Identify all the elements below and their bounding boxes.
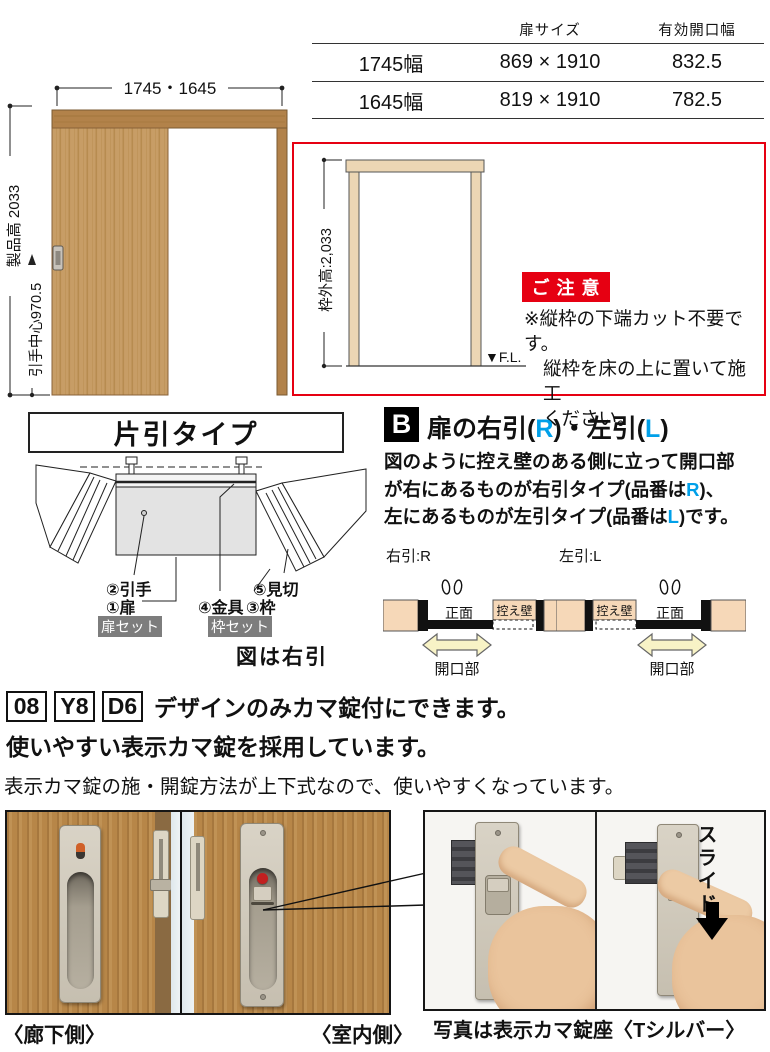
design-code-y8: Y8 [54, 691, 95, 722]
latch-lever [150, 879, 172, 891]
size-table-header-opening: 有効開口幅 [630, 19, 764, 40]
hand [488, 906, 595, 1009]
jamb-cap [585, 600, 593, 631]
row-width-label: 1645幅 [312, 86, 470, 115]
section-b-body: 図のように控え壁のある側に立って開口部 が右にあるものが右引タイプ(品番はR)、… [384, 448, 766, 531]
row-door-size: 869 × 1910 [470, 51, 630, 74]
lock-headline-2: 使いやすい表示カマ錠を採用しています。 [6, 728, 440, 762]
latch-hardware [190, 836, 205, 920]
handle-dim-arrow [28, 254, 36, 265]
hanger-bracket [126, 457, 247, 474]
down-arrow-icon [696, 902, 728, 940]
height-dimension-label: 製品高 2033 [6, 185, 23, 268]
lintel [52, 110, 287, 128]
diagram-title: 右引:R [386, 548, 431, 565]
row-opening: 782.5 [630, 89, 764, 112]
callout-lines [250, 855, 430, 915]
frame-height-dimension-label: 枠外高:2,033 [318, 228, 335, 312]
jamb-cap [418, 600, 428, 631]
opening-arrow [423, 634, 491, 656]
left-jamb [349, 172, 359, 366]
screw [260, 830, 266, 836]
wall-left [383, 600, 418, 631]
door-pull-recess [56, 251, 61, 265]
front-label: 正面 [445, 605, 473, 621]
table-row: 1645幅 819 × 1910 782.5 [312, 81, 764, 119]
row-door-size: 819 × 1910 [470, 89, 630, 112]
photo-corridor-side [7, 812, 180, 1013]
lock-headline-1: デザインのみカマ錠付にできます。 [154, 689, 520, 723]
photo-caption: 写真は表示カマ錠座〈Tシルバー〉 [433, 1014, 745, 1043]
opening-label: 開口部 [649, 661, 694, 678]
screw [260, 994, 266, 1000]
pull-recess [67, 872, 94, 989]
door-bar [636, 620, 701, 629]
caution-line: 縦枠を床の上に置いて施工 [524, 356, 764, 406]
caution-box: 枠外高:2,033 ▼F.L. ご注意 ※縦枠の下端カット不要です。 縦枠を床の… [292, 142, 766, 396]
pocket-label: 控え壁 [496, 603, 532, 618]
body-line: 図のように控え壁のある側に立って開口部 [384, 448, 766, 476]
latch-rod [196, 843, 200, 891]
row-width-label: 1745幅 [312, 48, 470, 77]
door-bar [428, 620, 493, 629]
caution-badge: ご注意 [522, 272, 610, 302]
badge-door-set: 扉セット [98, 616, 162, 637]
size-table-header-row: 扉サイズ 有効開口幅 [312, 16, 764, 43]
frame-gap [171, 812, 180, 1013]
pocket-label: 控え壁 [596, 603, 632, 618]
body-line: が右にあるものが右引タイプ(品番はR)、 [384, 476, 766, 504]
catalog-page: 扉サイズ 有効開口幅 1745幅 869 × 1910 832.5 1645幅 … [0, 0, 770, 1052]
design-code-d6: D6 [102, 691, 143, 722]
katabiki-title-box: 片引タイプ [28, 412, 344, 453]
right-pull-diagram: 右引:R 正面 控え壁 開口部 [383, 548, 573, 680]
feet-icon [441, 580, 462, 595]
frame-diagram: 枠外高:2,033 ▼F.L. [302, 154, 526, 382]
right-jamb [471, 172, 481, 366]
jamb-cap [701, 600, 711, 631]
screw [495, 830, 501, 836]
section-b-title: 扉の右引(R)・左引(L) [427, 409, 669, 445]
floor-level-label: ▼F.L. [485, 349, 521, 365]
door-dashed [596, 620, 636, 629]
orange-indicator [76, 843, 85, 859]
section-b-badge: B [384, 407, 419, 442]
body-line: 左にあるものが左引タイプ(品番はL)です。 [384, 503, 766, 531]
door-panel [116, 487, 256, 555]
room-caption: 〈室内側〉 [311, 1018, 414, 1048]
latch-hardware [153, 830, 169, 918]
photo-lock [597, 812, 764, 1009]
row-opening: 832.5 [630, 51, 764, 74]
design-codes-row: 08 Y8 D6 デザインのみカマ錠付にできます。 [6, 689, 520, 723]
label-tobira: ①扉 [106, 594, 136, 618]
pull-pin [142, 511, 147, 516]
label-mikiri: ⑤見切 [253, 576, 299, 600]
door-panel [52, 128, 168, 395]
corridor-caption: 〈廊下側〉 [3, 1018, 106, 1048]
handle-center-dimension-label: 引手中心970.5 [28, 283, 45, 377]
door-track [116, 474, 256, 487]
lock-body-text: 表示カマ錠の施・開錠方法が上下式なので、使いやすくなっています。 [4, 770, 624, 799]
lock-plate [240, 823, 284, 1007]
left-pull-diagram: 左引:L 正面 控え壁 開口部 [556, 548, 746, 680]
katabiki-caption: 図は右引 [236, 641, 328, 671]
table-row: 1745幅 869 × 1910 832.5 [312, 43, 764, 81]
door-dashed [493, 620, 533, 629]
screw [676, 832, 682, 838]
lock-slider [487, 878, 509, 892]
wall-left [556, 600, 585, 631]
photo-unlock [425, 812, 595, 1009]
katabiki-structure-diagram [30, 453, 370, 613]
opening-arrow [638, 634, 706, 656]
size-table-header-door-size: 扉サイズ [470, 19, 630, 40]
caution-line: ※縦枠の下端カット不要です。 [524, 306, 764, 356]
right-jamb [277, 128, 287, 395]
wall-right [711, 600, 746, 631]
jamb-cap [536, 600, 544, 631]
kama-lock-body [625, 842, 661, 884]
label-kanagu: ④金具 [198, 594, 244, 618]
size-table: 扉サイズ 有効開口幅 1745幅 869 × 1910 832.5 1645幅 … [312, 16, 764, 119]
feet-icon [659, 580, 680, 595]
head-jamb [346, 160, 484, 172]
opening-label: 開口部 [434, 661, 479, 678]
diagram-title: 左引:L [559, 548, 602, 565]
lock-operation-photos: スライド [423, 810, 766, 1011]
width-dimension-label: 1745・1645 [124, 79, 217, 98]
badge-frame-set: 枠セット [208, 616, 272, 637]
callout-mikiri [284, 549, 288, 573]
front-label: 正面 [656, 605, 684, 621]
design-code-08: 08 [6, 691, 47, 722]
lock-plate [59, 825, 101, 1003]
door-elevation-diagram: 1745・1645 製品高 2033 引手中心970.5 [0, 58, 300, 403]
